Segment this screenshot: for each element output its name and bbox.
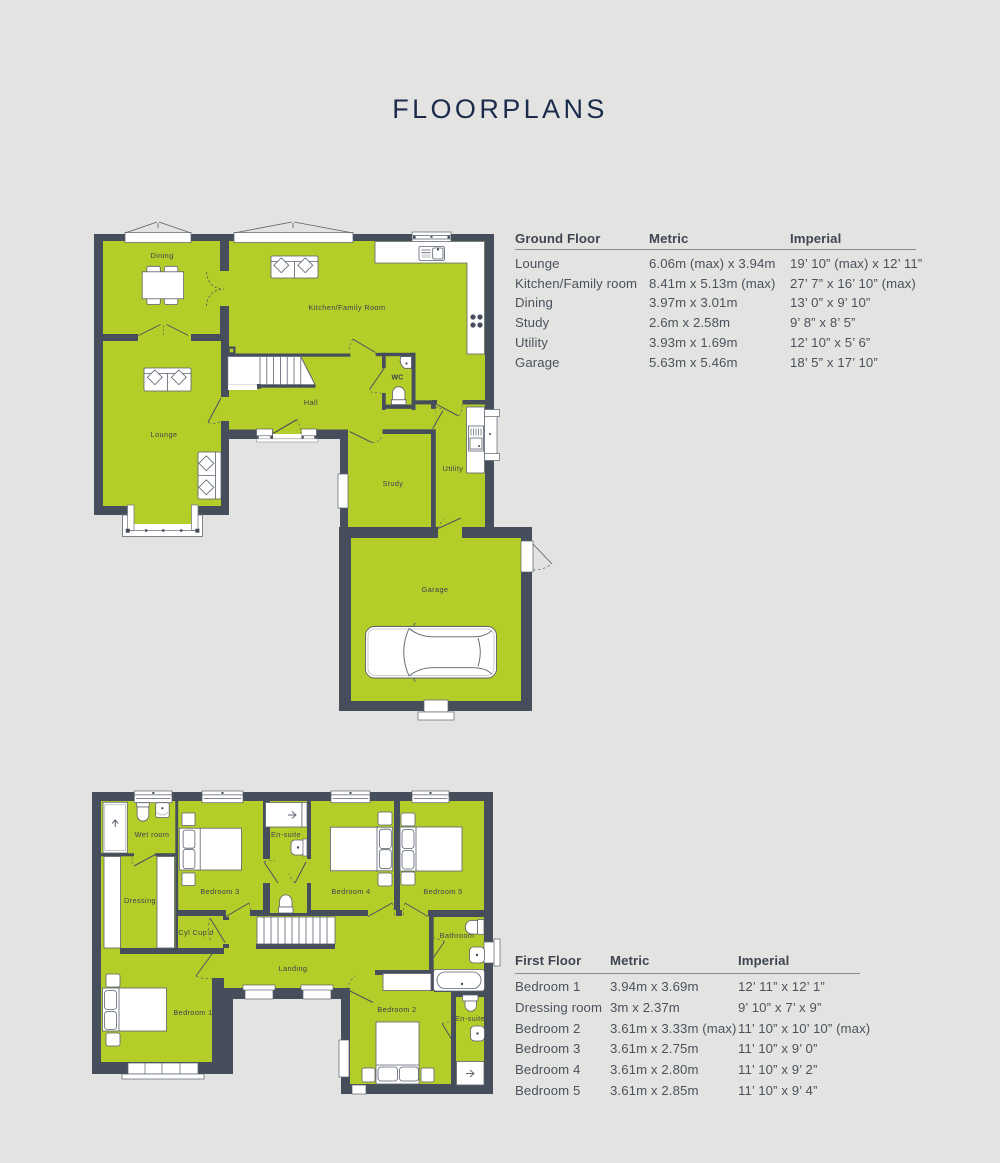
svg-text:Bedroom 5: Bedroom 5: [423, 887, 462, 896]
svg-text:Cyl Cup’d: Cyl Cup’d: [178, 928, 213, 937]
svg-text:Bedroom 2: Bedroom 2: [377, 1005, 416, 1014]
svg-text:Garage: Garage: [422, 585, 449, 594]
svg-text:Wet room: Wet room: [135, 830, 170, 839]
svg-text:Study: Study: [383, 479, 404, 488]
svg-text:Bedroom 4: Bedroom 4: [331, 887, 370, 896]
svg-text:Dining: Dining: [150, 251, 173, 260]
svg-text:Lounge: Lounge: [151, 430, 178, 439]
svg-text:En-suite: En-suite: [271, 830, 301, 839]
svg-text:En-suite: En-suite: [455, 1014, 485, 1023]
svg-text:Landing: Landing: [279, 964, 308, 973]
svg-text:Utility: Utility: [443, 464, 464, 473]
svg-text:Kitchen/Family Room: Kitchen/Family Room: [309, 303, 386, 312]
svg-text:Bathroom: Bathroom: [440, 931, 475, 940]
svg-text:Hall: Hall: [304, 398, 318, 407]
svg-text:Dressing: Dressing: [124, 896, 156, 905]
svg-text:WC: WC: [391, 375, 403, 382]
svg-text:Bedroom 1: Bedroom 1: [173, 1008, 212, 1017]
svg-text:Bedroom 3: Bedroom 3: [200, 887, 239, 896]
